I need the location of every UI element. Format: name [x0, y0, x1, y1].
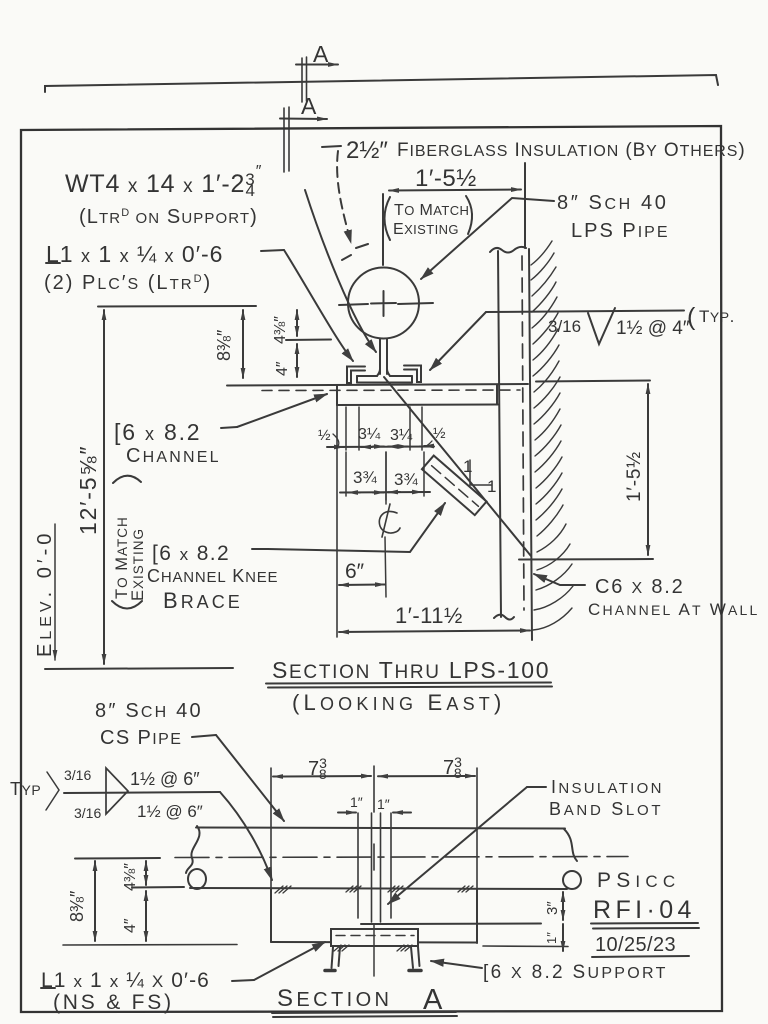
svg-text:ELEV. 0′-0: ELEV. 0′-0 — [34, 530, 56, 657]
svg-text:(NS & FS): (NS & FS) — [53, 991, 174, 1014]
svg-text:1′-5½: 1′-5½ — [624, 451, 645, 502]
svg-text:(LTRD ON SUPPORT): (LTRD ON SUPPORT) — [79, 206, 258, 228]
svg-text:8″ SCH 40: 8″ SCH 40 — [95, 700, 203, 722]
svg-text:1: 1 — [463, 457, 472, 476]
svg-text:1′-11½: 1′-11½ — [395, 603, 463, 628]
svg-text:(2) PLC′S (LTRD): (2) PLC′S (LTRD) — [44, 272, 212, 294]
svg-text:1: 1 — [487, 477, 496, 496]
svg-text:TO MATCH: TO MATCH — [394, 202, 469, 219]
svg-text:3¼: 3¼ — [358, 426, 381, 443]
svg-text:FIBERGLASS INSULATION (BY OTHE: FIBERGLASS INSULATION (BY OTHERS) — [397, 140, 746, 161]
svg-text:BAND SLOT: BAND SLOT — [549, 799, 663, 819]
svg-text:3″: 3″ — [544, 901, 561, 915]
svg-text:L1 x 1 x ¼ X 0′-6: L1 x 1 x ¼ X 0′-6 — [41, 969, 210, 992]
svg-text:1½ @ 6″: 1½ @ 6″ — [130, 769, 200, 789]
svg-text:CHANNEL: CHANNEL — [126, 445, 221, 467]
svg-text:CS PIPE: CS PIPE — [100, 727, 182, 749]
svg-text:738: 738 — [308, 755, 327, 782]
svg-text:(: ( — [687, 303, 696, 331]
svg-text:[6 x 8.2: [6 x 8.2 — [114, 419, 201, 445]
svg-text:8⅜″: 8⅜″ — [214, 329, 234, 361]
svg-text:1″: 1″ — [544, 932, 559, 944]
svg-text:4″: 4″ — [274, 361, 291, 376]
svg-text:RFI·04: RFI·04 — [593, 896, 696, 924]
svg-text:CHANNEL KNEE: CHANNEL KNEE — [147, 566, 278, 586]
svg-text:12′-5⅝″: 12′-5⅝″ — [75, 445, 101, 535]
svg-text:½: ½ — [318, 427, 331, 444]
svg-text:3¾: 3¾ — [394, 470, 418, 489]
svg-text:A: A — [313, 41, 329, 67]
svg-text:8⅜″: 8⅜″ — [67, 890, 87, 922]
svg-text:PSICC: PSICC — [597, 869, 680, 892]
svg-text:A: A — [301, 93, 317, 119]
svg-text:C6 X 8.2: C6 X 8.2 — [595, 576, 685, 598]
svg-text:TO MATCH: TO MATCH — [113, 516, 131, 599]
svg-text:6″: 6″ — [345, 560, 365, 583]
svg-text:3/16: 3/16 — [548, 317, 581, 336]
svg-text:4″: 4″ — [122, 918, 139, 933]
svg-text:EXISTING: EXISTING — [393, 221, 459, 238]
svg-text:EXISTING: EXISTING — [129, 528, 147, 601]
svg-text:3¾: 3¾ — [353, 468, 377, 487]
svg-text:[6 X 8.2 SUPPORT: [6 X 8.2 SUPPORT — [483, 962, 668, 983]
svg-text:INSULATION: INSULATION — [551, 777, 664, 797]
svg-text:8″ SCH 40: 8″ SCH 40 — [557, 192, 668, 214]
svg-text:CHANNEL AT WALL: CHANNEL AT WALL — [588, 600, 759, 619]
svg-text:1½ @ 4″: 1½ @ 4″ — [616, 318, 690, 339]
svg-text:10/25/23: 10/25/23 — [595, 934, 676, 956]
svg-text:(LOOKING EAST): (LOOKING EAST) — [292, 690, 506, 715]
svg-text:1½ @ 6″: 1½ @ 6″ — [137, 802, 203, 821]
svg-text:3/16: 3/16 — [64, 767, 91, 783]
svg-text:[6 x 8.2: [6 x 8.2 — [152, 542, 230, 565]
svg-text:BRACE: BRACE — [163, 588, 243, 613]
svg-text:L1 x 1 x ¼ x 0′-6: L1 x 1 x ¼ x 0′-6 — [46, 241, 223, 267]
svg-text:TYP.: TYP. — [699, 307, 735, 326]
svg-text:SECTION: SECTION — [277, 985, 392, 1012]
svg-text:TYP: TYP — [10, 779, 41, 799]
svg-text:3/16: 3/16 — [74, 805, 101, 821]
svg-text:LPS PIPE: LPS PIPE — [571, 220, 670, 242]
svg-text:2½″: 2½″ — [346, 137, 388, 164]
svg-text:1″: 1″ — [377, 796, 390, 812]
svg-text:3¼: 3¼ — [390, 427, 413, 444]
svg-text:1′-5½: 1′-5½ — [415, 165, 477, 192]
svg-text:1″: 1″ — [350, 794, 363, 810]
